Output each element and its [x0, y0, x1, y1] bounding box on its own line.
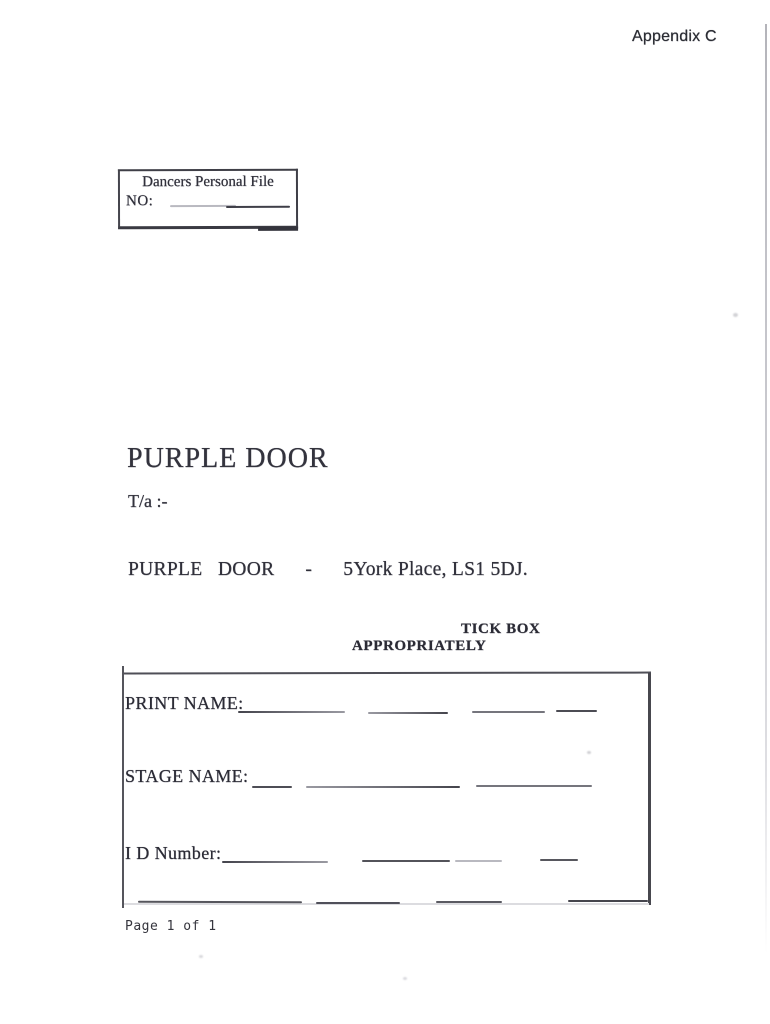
scan-ink-blot	[258, 227, 298, 231]
print-name-blank-line	[556, 710, 597, 712]
stage-name-blank-line	[252, 786, 292, 788]
company-title: PURPLE DOOR	[127, 443, 329, 475]
scanner-edge-artifact-line	[765, 24, 767, 954]
form-box-border-right	[648, 673, 651, 905]
appendix-label: Appendix C	[632, 28, 717, 46]
id-number-label: I D Number:	[125, 843, 221, 864]
print-name-blank-line	[368, 712, 448, 714]
id-number-blank-line	[362, 860, 450, 862]
print-name-blank-line	[472, 711, 545, 713]
file-box-title: Dancers Personal File	[120, 174, 296, 191]
form-box-border-top	[122, 672, 651, 675]
page-number-footer: Page 1 of 1	[125, 919, 217, 934]
scan-speck	[587, 751, 591, 754]
form-box-border-bottom-segment	[316, 902, 400, 904]
address-line: PURPLE DOOR - 5York Place, LS1 5DJ.	[128, 559, 528, 581]
form-box-border-bottom-segment	[436, 901, 502, 903]
stage-name-label: STAGE NAME:	[125, 766, 248, 787]
scan-speck	[403, 977, 407, 980]
form-box-border-bottom-segment	[568, 900, 648, 902]
form-box-border-left	[122, 666, 124, 908]
scanned-document-page: Appendix C Dancers Personal File NO: PUR…	[0, 0, 770, 1024]
id-number-blank-line	[222, 861, 328, 863]
form-box-border-bottom-segment	[138, 901, 302, 903]
id-number-blank-line	[455, 860, 502, 862]
print-name-blank-line	[238, 711, 345, 713]
stage-name-blank-line	[476, 785, 592, 787]
file-no-label: NO:	[126, 193, 153, 210]
tick-box-instruction-line2: APPROPRIATELY	[352, 638, 486, 655]
stage-name-blank-line	[306, 786, 460, 788]
trading-as-label: T/a :-	[128, 491, 167, 512]
id-number-blank-line	[540, 859, 578, 861]
scan-speck	[733, 313, 738, 317]
file-no-blank-line	[226, 206, 290, 208]
scan-speck	[199, 955, 203, 958]
tick-box-instruction-line1: TICK BOX	[461, 621, 540, 638]
print-name-label: PRINT NAME:	[125, 693, 244, 714]
file-number-box: Dancers Personal File NO:	[118, 169, 298, 229]
